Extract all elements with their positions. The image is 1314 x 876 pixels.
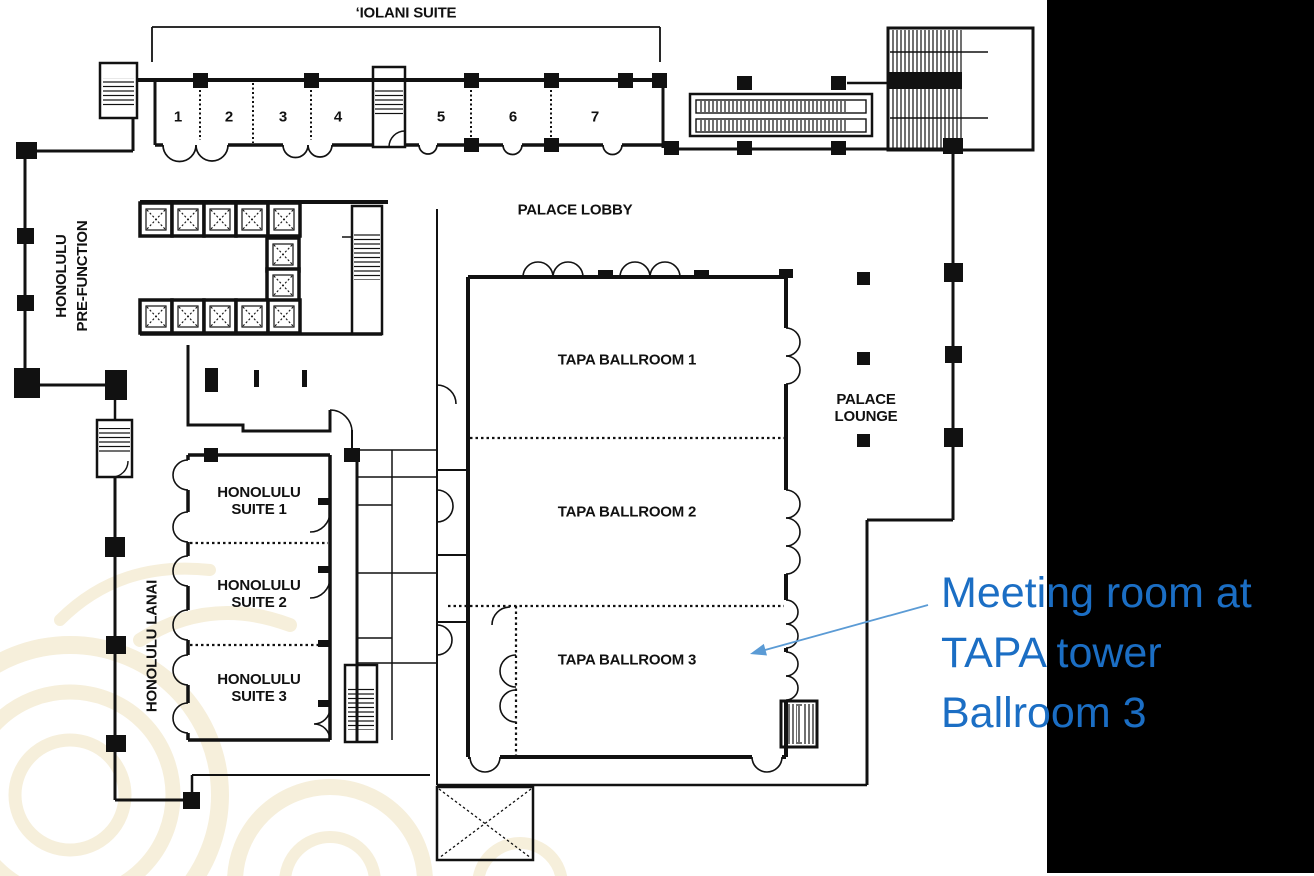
label-palace-lounge: PALACE LOUNGE <box>835 391 898 425</box>
tapa-ballrooms-block <box>437 209 817 860</box>
elevator-bank <box>140 202 388 334</box>
door-arcs <box>470 328 800 772</box>
stairs-icon <box>97 420 132 477</box>
room-number-4: 4 <box>334 109 342 126</box>
label-tapa-ballroom-3: TAPA BALLROOM 3 <box>558 652 696 669</box>
room-number-1: 1 <box>174 109 182 126</box>
label-tapa-ballroom-1: TAPA BALLROOM 1 <box>558 352 696 369</box>
stairs-icon <box>100 63 137 151</box>
label-palace-lobby: PALACE LOBBY <box>518 202 633 219</box>
room-number-2: 2 <box>225 109 233 126</box>
stairs-icon <box>345 665 377 742</box>
room-number-7: 7 <box>591 109 599 126</box>
watermark-pattern <box>0 569 562 876</box>
floorplan-page: ‘IOLANI SUITE 1 2 3 4 5 6 7 PALACE LOBBY… <box>0 0 1314 876</box>
service-area <box>188 345 352 450</box>
label-honolulu-prefunction: HONOLULU PRE-FUNCTION <box>51 221 93 332</box>
iolani-bracket <box>152 27 660 62</box>
annotation-line-2: TAPA tower <box>941 623 1301 683</box>
elevator-icon <box>140 203 300 333</box>
stairs-icon <box>781 701 817 747</box>
label-honolulu-suite-3: HONOLULU SUITE 3 <box>217 671 300 705</box>
label-iolani-suite: ‘IOLANI SUITE <box>356 5 457 22</box>
honolulu-suites-block <box>173 448 437 742</box>
escalator-icon <box>690 94 872 136</box>
label-honolulu-suite-1: HONOLULU SUITE 1 <box>217 484 300 518</box>
top-right-circulation <box>664 28 1033 155</box>
label-honolulu-lanai: HONOLULU LANAI <box>142 580 163 712</box>
annotation-line-1: Meeting room at <box>941 563 1301 623</box>
iolani-wing <box>100 27 667 162</box>
x-box <box>437 787 533 860</box>
label-honolulu-suite-2: HONOLULU SUITE 2 <box>217 577 300 611</box>
room-number-5: 5 <box>437 109 445 126</box>
annotation-arrow <box>750 605 928 656</box>
label-tapa-ballroom-2: TAPA BALLROOM 2 <box>558 504 696 521</box>
stairs-icon <box>342 206 382 334</box>
door-arcs <box>492 607 516 722</box>
annotation-line-3: Ballroom 3 <box>941 683 1301 743</box>
door-arcs <box>437 385 456 655</box>
column-markers <box>14 142 200 809</box>
room-number-6: 6 <box>509 109 517 126</box>
room-number-3: 3 <box>279 109 287 126</box>
annotation-text: Meeting room at TAPA tower Ballroom 3 <box>941 563 1301 743</box>
stairs-icon <box>888 28 1033 150</box>
